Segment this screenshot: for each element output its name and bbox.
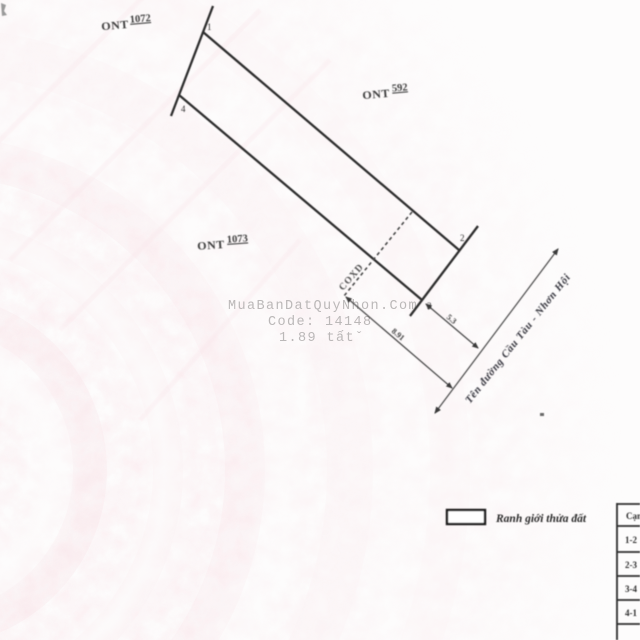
svg-text:1: 1 bbox=[207, 22, 212, 32]
svg-text:ONT: ONT bbox=[101, 17, 130, 33]
svg-text:1072: 1072 bbox=[129, 13, 151, 26]
svg-text:Cạnh: Cạnh bbox=[626, 511, 640, 521]
svg-text:Code: 14148: Code: 14148 bbox=[268, 315, 373, 330]
svg-text:592: 592 bbox=[391, 82, 408, 94]
svg-text:2: 2 bbox=[460, 233, 465, 243]
svg-text:ONT: ONT bbox=[197, 237, 225, 253]
svg-text:Ranh giới thửa đất: Ranh giới thửa đất bbox=[495, 512, 587, 525]
svg-text:4-1: 4-1 bbox=[625, 608, 637, 618]
svg-text:1-2: 1-2 bbox=[625, 535, 637, 545]
svg-text:1.89 tấtˇ: 1.89 tấtˇ bbox=[279, 331, 365, 346]
svg-text:3-4: 3-4 bbox=[625, 584, 637, 594]
svg-text:3: 3 bbox=[427, 301, 432, 311]
svg-text:4: 4 bbox=[181, 104, 186, 114]
svg-text:1073: 1073 bbox=[227, 233, 249, 245]
svg-text:2-3: 2-3 bbox=[625, 560, 637, 570]
svg-text:MuaBanDatQuyNhon.Com: MuaBanDatQuyNhon.Com bbox=[228, 299, 418, 314]
svg-text:ONT: ONT bbox=[362, 86, 391, 102]
